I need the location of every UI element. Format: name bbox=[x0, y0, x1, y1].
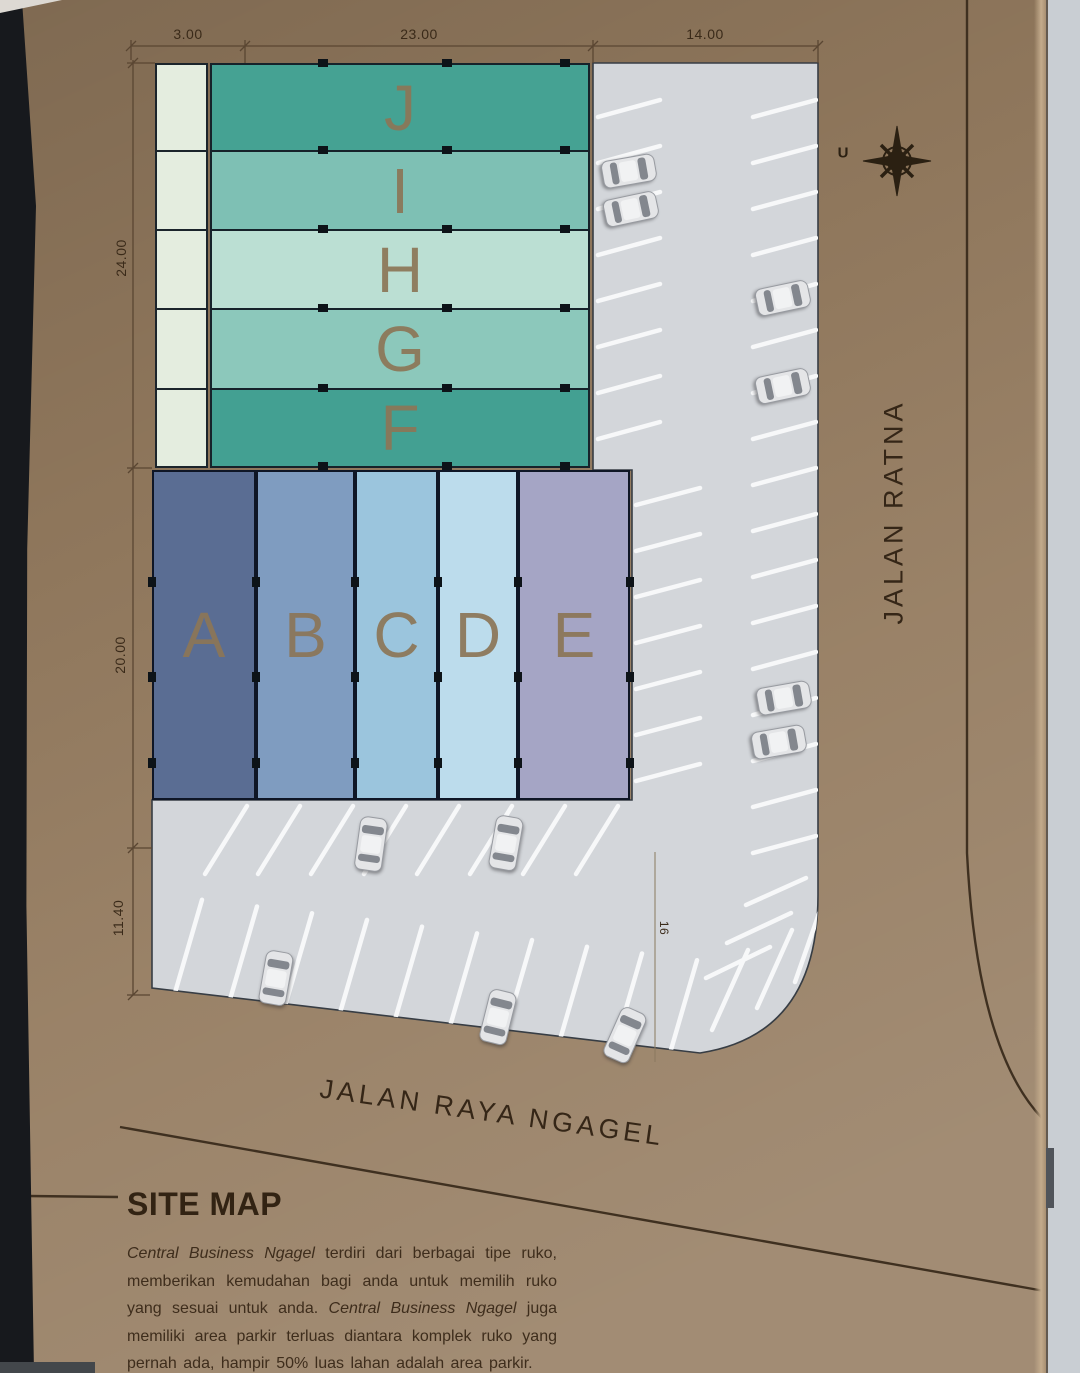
page-fold-highlight bbox=[1034, 0, 1046, 1373]
caption-description: Central Business Ngagel terdiri dari ber… bbox=[127, 1240, 557, 1373]
dim-top-14: 14.00 bbox=[686, 26, 724, 42]
dim-left-11: 11.40 bbox=[110, 900, 126, 937]
car-icon bbox=[353, 815, 388, 872]
site-map-page: J I H G F A B C D E 3.00 23.00 14.00 24.… bbox=[0, 0, 1080, 1373]
car-icon bbox=[488, 814, 525, 872]
car-icon bbox=[602, 190, 661, 229]
street-jalan-ratna: JALAN RATNA bbox=[879, 399, 910, 624]
cars-layer bbox=[0, 0, 1080, 1373]
car-icon bbox=[478, 987, 518, 1046]
car-icon bbox=[750, 724, 808, 761]
dim-parking-16: 16 bbox=[657, 921, 671, 935]
car-icon bbox=[600, 153, 658, 190]
car-icon bbox=[754, 367, 813, 406]
dim-top-23: 23.00 bbox=[400, 26, 438, 42]
dim-left-20: 20.00 bbox=[112, 636, 128, 674]
dim-left-24: 24.00 bbox=[113, 239, 129, 277]
car-icon bbox=[755, 680, 813, 717]
car-icon bbox=[754, 279, 813, 318]
car-icon bbox=[601, 1005, 649, 1066]
caption-heading: SITE MAP bbox=[127, 1186, 282, 1223]
north-label: U bbox=[838, 145, 849, 162]
dim-top-3: 3.00 bbox=[173, 26, 202, 42]
car-icon bbox=[258, 949, 295, 1007]
photo-bottomleft-sliver bbox=[0, 1362, 95, 1373]
caption-part: Central Business Ngagel bbox=[329, 1300, 517, 1317]
caption-part: Central Business Ngagel bbox=[127, 1245, 315, 1262]
photo-right-dark-mark bbox=[1046, 1148, 1054, 1208]
